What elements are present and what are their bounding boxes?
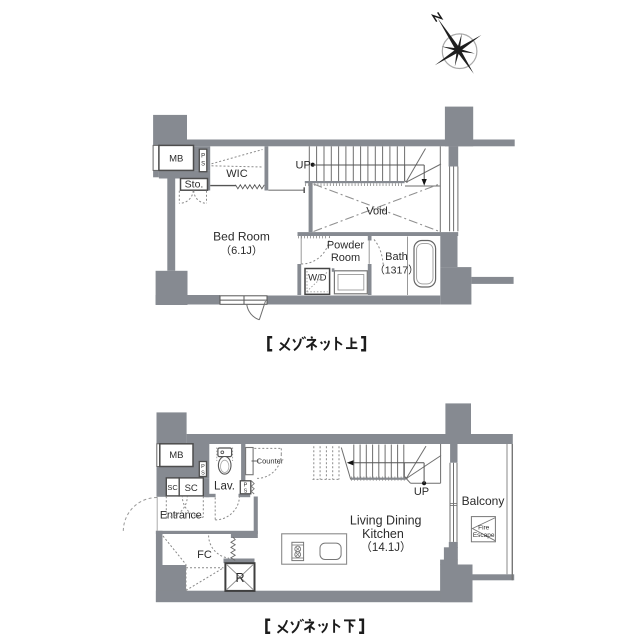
svg-text:Living Dining: Living Dining xyxy=(350,513,422,527)
svg-text:SC: SC xyxy=(167,483,178,492)
svg-text:Balcony: Balcony xyxy=(462,494,505,508)
svg-text:S: S xyxy=(201,161,205,167)
svg-text:Lav.: Lav. xyxy=(214,480,235,492)
svg-text:Bed Room: Bed Room xyxy=(213,230,270,244)
svg-text:Bath: Bath xyxy=(385,251,408,263)
svg-text:SC: SC xyxy=(185,483,198,494)
svg-text:S: S xyxy=(201,470,205,476)
svg-text:Powder: Powder xyxy=(327,239,365,251)
svg-text:Room: Room xyxy=(331,252,360,264)
svg-text:Fire: Fire xyxy=(478,525,490,532)
svg-text:WIC: WIC xyxy=(226,168,247,180)
svg-text:（1317）: （1317） xyxy=(374,265,418,277)
svg-text:UP: UP xyxy=(414,486,429,498)
svg-text:P: P xyxy=(201,153,205,159)
svg-text:Escape: Escape xyxy=(473,532,495,539)
svg-text:（14.1J）: （14.1J） xyxy=(360,541,411,554)
svg-text:FC: FC xyxy=(197,549,212,561)
svg-text:UP: UP xyxy=(296,159,311,171)
svg-text:P: P xyxy=(201,464,205,470)
svg-text:Sto.: Sto. xyxy=(185,179,204,191)
svg-text:Counter: Counter xyxy=(257,456,284,465)
svg-text:（6.1J）: （6.1J） xyxy=(220,244,263,257)
svg-text:MB: MB xyxy=(169,450,183,461)
svg-text:Void: Void xyxy=(366,206,387,218)
svg-text:R: R xyxy=(235,571,244,585)
svg-text:MB: MB xyxy=(169,153,183,164)
svg-text:S: S xyxy=(244,488,248,494)
svg-text:Kitchen: Kitchen xyxy=(362,527,404,541)
